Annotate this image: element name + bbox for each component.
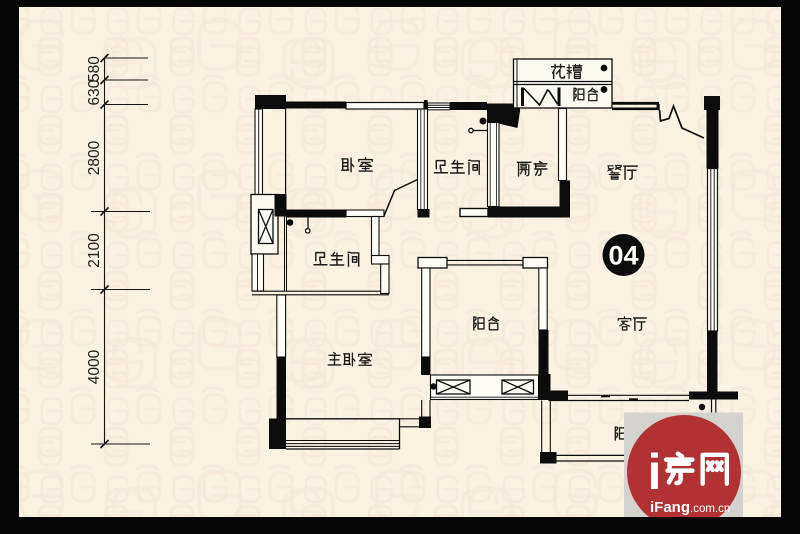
svg-text:2100: 2100 [86, 233, 103, 268]
svg-text:630: 630 [86, 79, 103, 105]
svg-text:580: 580 [86, 56, 103, 82]
svg-text:04: 04 [608, 241, 638, 271]
svg-text:2800: 2800 [86, 140, 103, 175]
svg-text:4000: 4000 [86, 349, 103, 384]
svg-text:i: i [648, 444, 662, 500]
